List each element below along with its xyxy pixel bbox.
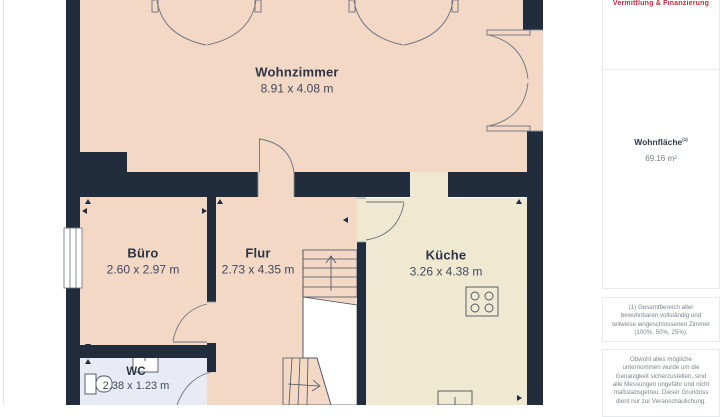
footnote-card: (1) Gesamtbereich aller bewohnbaren voll… <box>602 297 720 342</box>
living-area-label-text: Wohnfläche <box>634 137 682 147</box>
info-sidebar: Vermittlung & Finanzierung Wohnfläche(1)… <box>602 0 720 405</box>
floor-plan: Wohnzimmer 8.91 x 4.08 m Büro 2.60 x 2.9… <box>0 0 600 405</box>
divider <box>603 69 719 70</box>
wc-sink-icon <box>133 356 158 372</box>
living-area-label: Wohnfläche(1) <box>603 137 719 147</box>
living-area-value: 69.16 m² <box>603 154 719 163</box>
disclaimer-text: Obwohl alles mögliche unternommen wurde … <box>611 356 711 406</box>
window <box>64 228 82 288</box>
broker-logo-text: Vermittlung & Finanzierung <box>603 0 719 7</box>
floor-plan-drawing <box>0 0 600 405</box>
disclaimer-card: Obwohl alles mögliche unternommen wurde … <box>602 349 720 417</box>
floorplan-page: Wohnzimmer 8.91 x 4.08 m Büro 2.60 x 2.9… <box>0 0 720 405</box>
kitchen-sink-icon <box>438 391 472 405</box>
footnote-text: (1) Gesamtbereich aller bewohnbaren voll… <box>611 304 711 337</box>
stove-icon <box>466 287 498 316</box>
info-card: Vermittlung & Finanzierung Wohnfläche(1)… <box>602 0 720 289</box>
living-area-footnote-marker: (1) <box>682 137 688 142</box>
